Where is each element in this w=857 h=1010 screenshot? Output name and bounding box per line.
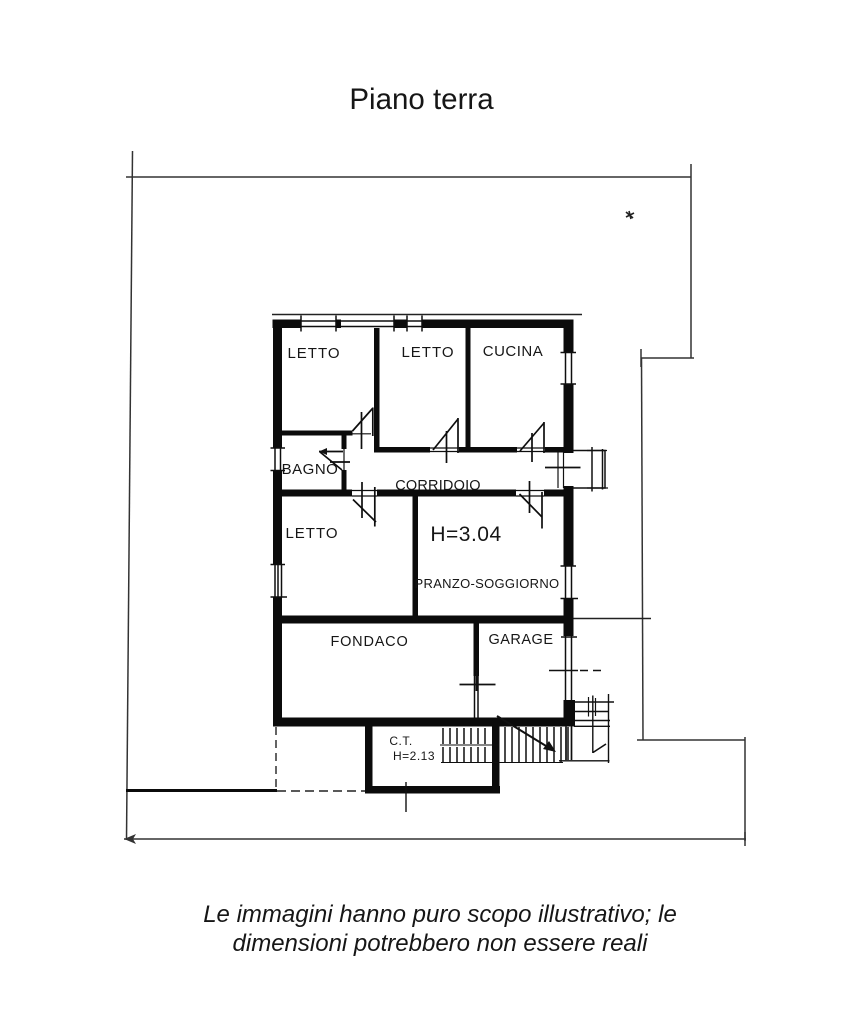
svg-text:C.T.: C.T. bbox=[389, 734, 412, 748]
svg-text:LETTO: LETTO bbox=[401, 344, 454, 361]
svg-text:LETTO: LETTO bbox=[287, 345, 340, 362]
svg-text:FONDACO: FONDACO bbox=[330, 634, 408, 650]
svg-text:Piano terra: Piano terra bbox=[349, 83, 494, 116]
svg-text:BAGNO: BAGNO bbox=[282, 461, 339, 478]
svg-text:LETTO: LETTO bbox=[285, 525, 338, 542]
svg-text:dimensioni potrebbero non esse: dimensioni potrebbero non essere reali bbox=[233, 930, 649, 957]
svg-text:H=3.04: H=3.04 bbox=[430, 523, 501, 546]
svg-text:PRANZO-SOGGIORNO: PRANZO-SOGGIORNO bbox=[415, 576, 560, 591]
svg-text:GARAGE: GARAGE bbox=[488, 632, 553, 648]
svg-text:Le immagini hanno puro scopo i: Le immagini hanno puro scopo illustrativ… bbox=[203, 901, 677, 928]
svg-text:CUCINA: CUCINA bbox=[483, 343, 544, 360]
svg-text:CORRIDOIO: CORRIDOIO bbox=[395, 478, 481, 494]
svg-text:H=2.13: H=2.13 bbox=[393, 749, 435, 763]
